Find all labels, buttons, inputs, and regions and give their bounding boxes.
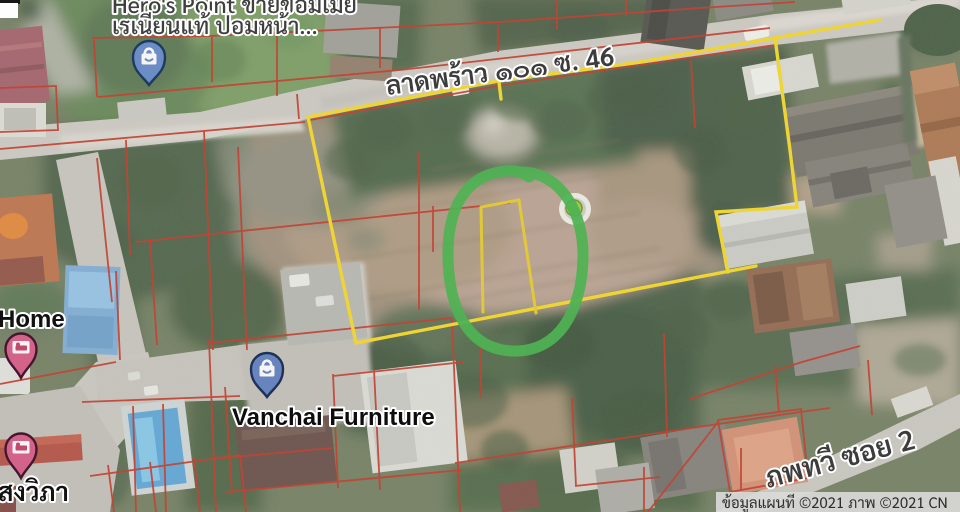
svg-text:Vanchai Furniture: Vanchai Furniture [232, 404, 435, 431]
svg-text:Home: Home [0, 306, 65, 333]
